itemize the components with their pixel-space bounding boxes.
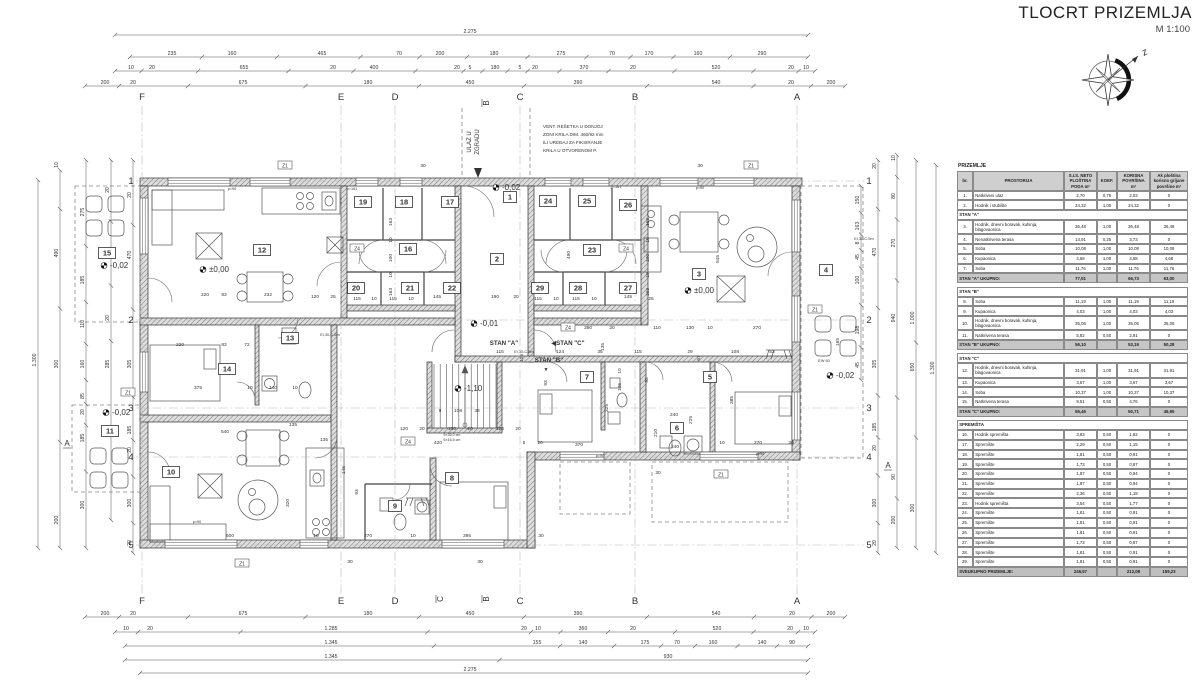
level-label: ±0,00	[209, 265, 230, 274]
room-number: 1	[508, 193, 512, 202]
table-cell: 5,82	[1064, 330, 1097, 340]
total-label: STAN "A" UKUPNO:	[957, 273, 1064, 283]
room-name: Spremište	[973, 489, 1064, 499]
room-name: Spremište	[973, 469, 1064, 479]
dim-label: 300	[80, 501, 86, 510]
dim-label: 150	[855, 196, 861, 205]
svg-text:z: z	[1139, 47, 1150, 60]
dim-label: 1.300	[930, 361, 936, 374]
dim-label: 5	[523, 440, 526, 446]
table-cell: 24,32	[1117, 200, 1150, 210]
table-cell: 53,19	[1117, 340, 1150, 350]
level-label: -0,02	[112, 408, 131, 417]
dim-label: 165	[835, 338, 841, 346]
dim-label: 38	[474, 408, 480, 414]
dim-label: 240	[671, 444, 679, 450]
table-cell: 0,87	[1117, 459, 1150, 469]
dim-label: 470	[872, 248, 878, 257]
dim-label: 20	[872, 540, 878, 546]
dim-label: 70	[396, 51, 402, 57]
compass-rose-icon: z	[1082, 47, 1150, 106]
table-cell: 36,48	[1064, 220, 1097, 234]
table-cell: 0	[1150, 489, 1188, 499]
dim-label: 115	[353, 296, 361, 302]
table-row: 15.Natkrivena terasa9,510,504,760	[957, 397, 1198, 407]
window-icon	[168, 178, 230, 186]
table-cell: 1,77	[1117, 498, 1150, 508]
room-number: 20	[352, 284, 360, 293]
table-cell: 1,87	[1064, 469, 1097, 479]
row-number: 9.	[957, 306, 973, 316]
dim-label: 5	[469, 65, 472, 71]
dim-label: 8	[855, 241, 861, 244]
window-icon	[792, 392, 800, 440]
room-name: Nenatkrivena terasa	[973, 234, 1064, 244]
table-cell: 159,23	[1150, 567, 1188, 577]
table-section-row: STAN "B"	[957, 287, 1198, 297]
dim-label: 175	[641, 640, 650, 646]
table-cell: 4,76	[1117, 397, 1150, 407]
room-name: Spremište	[973, 538, 1064, 548]
dim-label: 20	[105, 315, 111, 321]
table-cell: 66,73	[1117, 273, 1150, 283]
row-number: 3.	[957, 220, 973, 234]
table-cell: 0,91	[1117, 450, 1150, 460]
dim-label: 1.345	[325, 640, 338, 646]
grid-letter-top: A	[794, 92, 801, 103]
room-number: 19	[359, 198, 367, 207]
grid-letter-bottom: B	[632, 596, 638, 607]
dim-label: 240	[670, 412, 678, 418]
table-row: 22.Spremište2,360,501,180	[957, 489, 1198, 499]
room-number: 16	[404, 245, 412, 254]
window-icon	[356, 178, 378, 186]
dim-label: 125	[519, 354, 525, 362]
table-cell: 1,00	[1097, 200, 1117, 210]
dim-label: 180	[364, 611, 373, 617]
table-cell: 10,08	[1117, 244, 1150, 254]
dim-label: 545	[715, 255, 721, 263]
grid-letter-top: D	[392, 92, 399, 103]
dim-label: 540	[712, 611, 721, 617]
dim-label: 10	[803, 626, 809, 632]
row-number: 24.	[957, 508, 973, 518]
table-cell: 0,50	[1097, 397, 1117, 407]
dim-label: 275	[80, 208, 86, 217]
room-number: 7	[585, 373, 589, 382]
dim-label: 210	[653, 429, 659, 437]
dim-label: 200	[827, 80, 836, 86]
room-number: 22	[448, 284, 456, 293]
dim-label: 93	[354, 489, 360, 495]
table-row: 19.Spremište1,730,500,870	[957, 459, 1198, 469]
room-number: 25	[583, 197, 591, 206]
dim-label: 305	[872, 360, 878, 369]
dim-label: 90	[891, 474, 897, 480]
row-number: 20.	[957, 469, 973, 479]
dim-label: 450	[466, 611, 475, 617]
table-cell: 36,48	[1150, 220, 1188, 234]
dim-label: 520	[713, 626, 722, 632]
room-name: Spremište	[973, 479, 1064, 489]
table-header-cell: S.I.S. NETO PLOŠTINA PODA m²	[1064, 171, 1097, 191]
table-cell: 3,67	[1150, 378, 1188, 388]
window-icon	[442, 540, 504, 548]
dim-label: 45	[855, 362, 861, 368]
row-number: 28.	[957, 547, 973, 557]
table-cell: 0,50	[1097, 518, 1117, 528]
table-row: 4.Nenatkrivena terasa14,910,253,730	[957, 234, 1198, 244]
plan-annotation: p=90	[193, 520, 202, 524]
dim-label: 370	[575, 442, 583, 448]
row-number: 10.	[957, 316, 973, 330]
dim-label: 200	[827, 611, 836, 617]
table-cell: 3,67	[1064, 378, 1097, 388]
room-name: Spremište	[973, 528, 1064, 538]
table-cell: 0,50	[1097, 430, 1117, 440]
dim-label: 390	[584, 325, 592, 331]
dim-label: 150	[448, 426, 456, 432]
table-cell: 11,19	[1150, 297, 1188, 307]
dim-label: 70	[609, 51, 615, 57]
table-cell: 0	[1150, 397, 1188, 407]
table-cell: 0	[1150, 459, 1188, 469]
dim-label: 130	[686, 325, 694, 331]
room-name: Hodnik, dnevni boravak, kuhinja, blagova…	[973, 363, 1064, 377]
table-cell: 24,32	[1064, 200, 1097, 210]
plan-annotation: KRILA U OTVORENOM P.	[543, 148, 597, 153]
table-row: 5.Soba10,081,0010,0810,08	[957, 244, 1198, 254]
zone-marker-label: Z1	[282, 164, 288, 170]
room-number: 17	[446, 198, 454, 207]
dim-label: 675	[239, 611, 248, 617]
dim-label: 163	[645, 218, 651, 226]
table-cell: 0	[1150, 528, 1188, 538]
table-cell: 2,91	[1117, 330, 1150, 340]
dim-label: 163	[388, 288, 394, 296]
window-icon	[250, 178, 290, 186]
table-row: 1.Natkriveni ulaz2,700,752,030	[957, 191, 1198, 201]
plan-annotation: EW 60	[818, 359, 829, 363]
dim-label: 470	[127, 251, 133, 260]
dim-label: 1.000	[910, 311, 916, 324]
table-cell: 1,92	[1117, 430, 1150, 440]
room-number: 15	[103, 249, 111, 258]
zone-marker-label: Z4	[623, 247, 629, 253]
window-icon	[700, 452, 758, 460]
dim-label: 1.300	[32, 353, 38, 366]
entrance-arrow-icon	[474, 168, 482, 178]
table-row: 9.Kupaonica4,031,004,034,03	[957, 306, 1198, 316]
dim-label: 10	[54, 162, 60, 168]
dim-label: 20	[419, 426, 425, 432]
table-cell: 3,67	[1117, 378, 1150, 388]
zone-marker-label: Z4	[565, 326, 571, 332]
dim-label: 115	[496, 349, 504, 355]
room-name: Hodnik i stubište	[973, 200, 1064, 210]
table-header-cell: KORISNA POVRŠINA m²	[1117, 171, 1150, 191]
window-icon	[714, 178, 754, 186]
plan-annotation: ULAZ U	[467, 131, 473, 152]
table-cell: 1,18	[1117, 489, 1150, 499]
room-number: 3	[697, 270, 701, 279]
table-cell: 11,19	[1117, 297, 1150, 307]
dim-label: 163	[388, 218, 394, 226]
row-number: 4.	[957, 234, 973, 244]
table-cell: 1,81	[1064, 557, 1097, 567]
dim-label: 490	[54, 249, 60, 258]
dim-label: 115	[634, 349, 642, 355]
table-header-cell: KOEF.	[1097, 171, 1117, 191]
room-number: 21	[406, 284, 414, 293]
table-cell	[1097, 567, 1117, 577]
plan-annotation: EI,30-C-5m	[320, 333, 339, 337]
dim-label: 140	[758, 640, 767, 646]
room-number: 14	[223, 365, 232, 374]
dim-label: 20	[127, 447, 133, 453]
dim-label: 93	[644, 377, 650, 383]
row-number: 12.	[957, 363, 973, 377]
dim-label: 163	[645, 288, 651, 296]
table-row: 7.Soba11,761,0011,7611,76	[957, 264, 1198, 274]
table-cell: 1,87	[1064, 479, 1097, 489]
dim-label: 395	[463, 533, 471, 539]
plan-annotation: p=90	[756, 452, 765, 456]
dim-label: 90	[789, 640, 795, 646]
dim-label: 83	[221, 342, 227, 348]
dim-label: 20	[609, 325, 615, 331]
zone-marker-label: Z1	[718, 473, 724, 479]
dim-label: 220	[176, 342, 184, 348]
dim-label: 160	[694, 51, 703, 57]
dim-label: 650	[910, 363, 916, 372]
dim-label: 20	[515, 426, 521, 432]
room-name: Spremište	[973, 547, 1064, 557]
dim-label: 10	[707, 325, 713, 331]
dim-label: 20	[787, 626, 793, 632]
room-name: Hodnik spremišta	[973, 430, 1064, 440]
dim-label: 10	[371, 296, 377, 302]
row-number: 29.	[957, 557, 973, 567]
table-cell: 0	[1150, 538, 1188, 548]
dim-label: 180	[490, 51, 499, 57]
dim-label: 20	[330, 65, 336, 71]
window-icon	[140, 352, 148, 392]
dim-label: 20	[127, 192, 133, 198]
dim-label: 135	[320, 437, 328, 443]
table-header-cell: br.	[957, 171, 973, 191]
dim-label: 540	[221, 429, 229, 435]
dim-label: 20	[521, 626, 527, 632]
dim-label: 200	[54, 516, 60, 525]
row-number: 1.	[957, 191, 973, 201]
table-cell: 0	[1150, 469, 1188, 479]
table-row: 29.Spremište1,810,500,910	[957, 557, 1198, 567]
table-section-row: STAN "A"	[957, 210, 1198, 220]
table-cell: 31,91	[1150, 363, 1188, 377]
table-row: 25.Spremište1,810,500,910	[957, 518, 1198, 528]
table-cell: 1,00	[1097, 306, 1117, 316]
table-cell: 56,10	[1064, 340, 1097, 350]
dim-label: 10	[645, 272, 651, 278]
room-name: Soba	[973, 264, 1064, 274]
row-number: 19.	[957, 459, 973, 469]
dim-label: 940	[891, 314, 897, 323]
dim-label: 140	[579, 640, 588, 646]
grid-number-right: 2	[866, 315, 871, 326]
table-cell: 35,06	[1117, 316, 1150, 330]
dim-label: 170	[645, 51, 654, 57]
table-cell: 0,50	[1097, 557, 1117, 567]
table-cell: 45,95	[1150, 407, 1188, 417]
row-number: 8.	[957, 297, 973, 307]
table-cell: 1,00	[1097, 378, 1117, 388]
table-cell: 0,50	[1097, 508, 1117, 518]
table-row: 24.Spremište1,810,500,910	[957, 508, 1198, 518]
dim-label: 110	[653, 325, 661, 331]
dim-label: 20	[467, 426, 473, 432]
table-cell: 1,81	[1064, 450, 1097, 460]
table-row: 16.Hodnik spremišta3,830,501,920	[957, 430, 1198, 440]
dim-label: 320	[285, 499, 291, 507]
table-cell: 36,48	[1117, 220, 1150, 234]
table-cell: 0	[1150, 508, 1188, 518]
table-cell: 1,81	[1064, 518, 1097, 528]
dim-label: 115	[534, 296, 542, 302]
dim-label: 300	[910, 504, 916, 513]
room-name: Hodnik, dnevni boravak, kuhinja, blagova…	[973, 220, 1064, 234]
table-cell: 0	[1150, 234, 1188, 244]
area-table-title: PRIZEMLJE	[958, 163, 1198, 169]
table-cell: 63,00	[1150, 273, 1188, 283]
dim-label: 20	[130, 611, 136, 617]
dim-label: 120	[400, 426, 408, 432]
dim-label: 375	[194, 385, 202, 391]
table-cell: 0	[1150, 498, 1188, 508]
table-cell: 1,00	[1097, 220, 1117, 234]
table-cell: 0,50	[1097, 479, 1117, 489]
table-row: 23.Hodnik spremišta3,540,501,770	[957, 498, 1198, 508]
dim-label: 10	[891, 155, 897, 161]
table-row: 18.Spremište1,810,500,910	[957, 450, 1198, 460]
room-number: 8	[450, 474, 454, 483]
dim-label: 10	[645, 237, 651, 243]
plan-annotation: p=90	[596, 454, 605, 458]
dim-label: 185	[80, 276, 86, 285]
dim-label: 1.345	[325, 654, 338, 660]
room-name: Spremište	[973, 459, 1064, 469]
plan-annotation: STAN "A"	[490, 340, 519, 347]
window-icon	[660, 178, 698, 186]
grid-number-right: 1	[866, 176, 871, 187]
room-number: 13	[286, 334, 294, 343]
room-number: 6	[675, 424, 679, 433]
room-name: Natkriveni ulaz	[973, 191, 1064, 201]
table-row: 11.Natkrivena terasa5,820,502,910	[957, 330, 1198, 340]
zone-marker-label: Z1	[812, 308, 818, 314]
dim-label: 390	[574, 611, 583, 617]
dim-label: 9	[439, 408, 442, 414]
zone-marker-label: Z1	[239, 562, 245, 568]
dim-label: 30	[697, 163, 703, 169]
room-number: 18	[400, 198, 408, 207]
room-number: 11	[106, 427, 114, 436]
dim-label: 235	[168, 51, 177, 57]
dim-label: 30	[538, 533, 544, 539]
plan-annotation: VENT. REŠETKA U DONJOJ	[543, 123, 603, 129]
dim-label: 83	[221, 292, 227, 298]
table-cell: 0	[1150, 191, 1188, 201]
row-number: 11.	[957, 330, 973, 340]
plan-annotation: p=161	[611, 185, 622, 189]
area-table: PRIZEMLJE br.PROSTORIJAS.I.S. NETO PLOŠT…	[957, 163, 1198, 577]
level-label: -0,02	[836, 371, 855, 380]
dim-label: 100	[855, 276, 861, 285]
table-cell: 11,76	[1064, 264, 1097, 274]
section-marker: C	[436, 596, 445, 602]
dim-label: 10	[535, 626, 541, 632]
level-label: -0,02	[502, 183, 521, 192]
dim-label: 120	[496, 426, 504, 432]
table-cell: 14,91	[1064, 234, 1097, 244]
dim-label: 270	[753, 325, 761, 331]
dim-label: 10	[553, 296, 559, 302]
grid-letter-bottom: F	[139, 596, 145, 607]
dim-label: 390	[574, 80, 583, 86]
dim-label: 20	[630, 65, 636, 71]
table-cell: 4,68	[1117, 254, 1150, 264]
plan-annotation: EI,30-C-5m	[854, 237, 873, 241]
dim-label: 20	[537, 440, 543, 446]
dim-label: 270	[891, 239, 897, 248]
table-cell: 0,50	[1097, 489, 1117, 499]
table-cell: 3,73	[1117, 234, 1150, 244]
table-cell: 4,03	[1150, 306, 1188, 316]
room-number: 29	[536, 284, 544, 293]
row-number: 25.	[957, 518, 973, 528]
staircase	[434, 364, 496, 428]
row-number: 18.	[957, 450, 973, 460]
table-cell: 0,50	[1097, 469, 1117, 479]
table-row: 27.Spremište1,730,500,870	[957, 538, 1198, 548]
table-cell: 1,00	[1097, 254, 1117, 264]
table-total-row: STAN "A" UKUPNO:77,9166,7363,00	[957, 273, 1198, 283]
dim-label: 675	[239, 80, 248, 86]
table-cell: 246,57	[1064, 567, 1097, 577]
dim-label: 10	[591, 296, 597, 302]
room-name: Kupaonica	[973, 378, 1064, 388]
table-cell: 9,51	[1064, 397, 1097, 407]
dim-label: 163	[855, 222, 861, 231]
grid-letter-bottom: E	[338, 596, 344, 607]
table-cell: 0,94	[1117, 479, 1150, 489]
room-number: 10	[167, 468, 175, 477]
room-name: Soba	[973, 244, 1064, 254]
dim-label: 220	[201, 292, 209, 298]
table-row: 2.Hodnik i stubište24,321,0024,320	[957, 200, 1198, 210]
dim-label: 20	[454, 65, 460, 71]
window-icon	[400, 178, 422, 186]
dim-label: 20	[532, 65, 538, 71]
room-name: Hodnik, dnevni boravak, kuhinja, blagova…	[973, 316, 1064, 330]
dim-label: 20	[872, 445, 878, 451]
dim-label: 450	[466, 80, 475, 86]
table-cell: 0,50	[1097, 330, 1117, 340]
dim-label: 145	[341, 466, 347, 474]
drawing-sheet: TLOCRT PRIZEMLJA M 1:100	[0, 0, 1200, 689]
table-cell: 1,00	[1097, 363, 1117, 377]
dim-label: 655	[240, 65, 249, 71]
